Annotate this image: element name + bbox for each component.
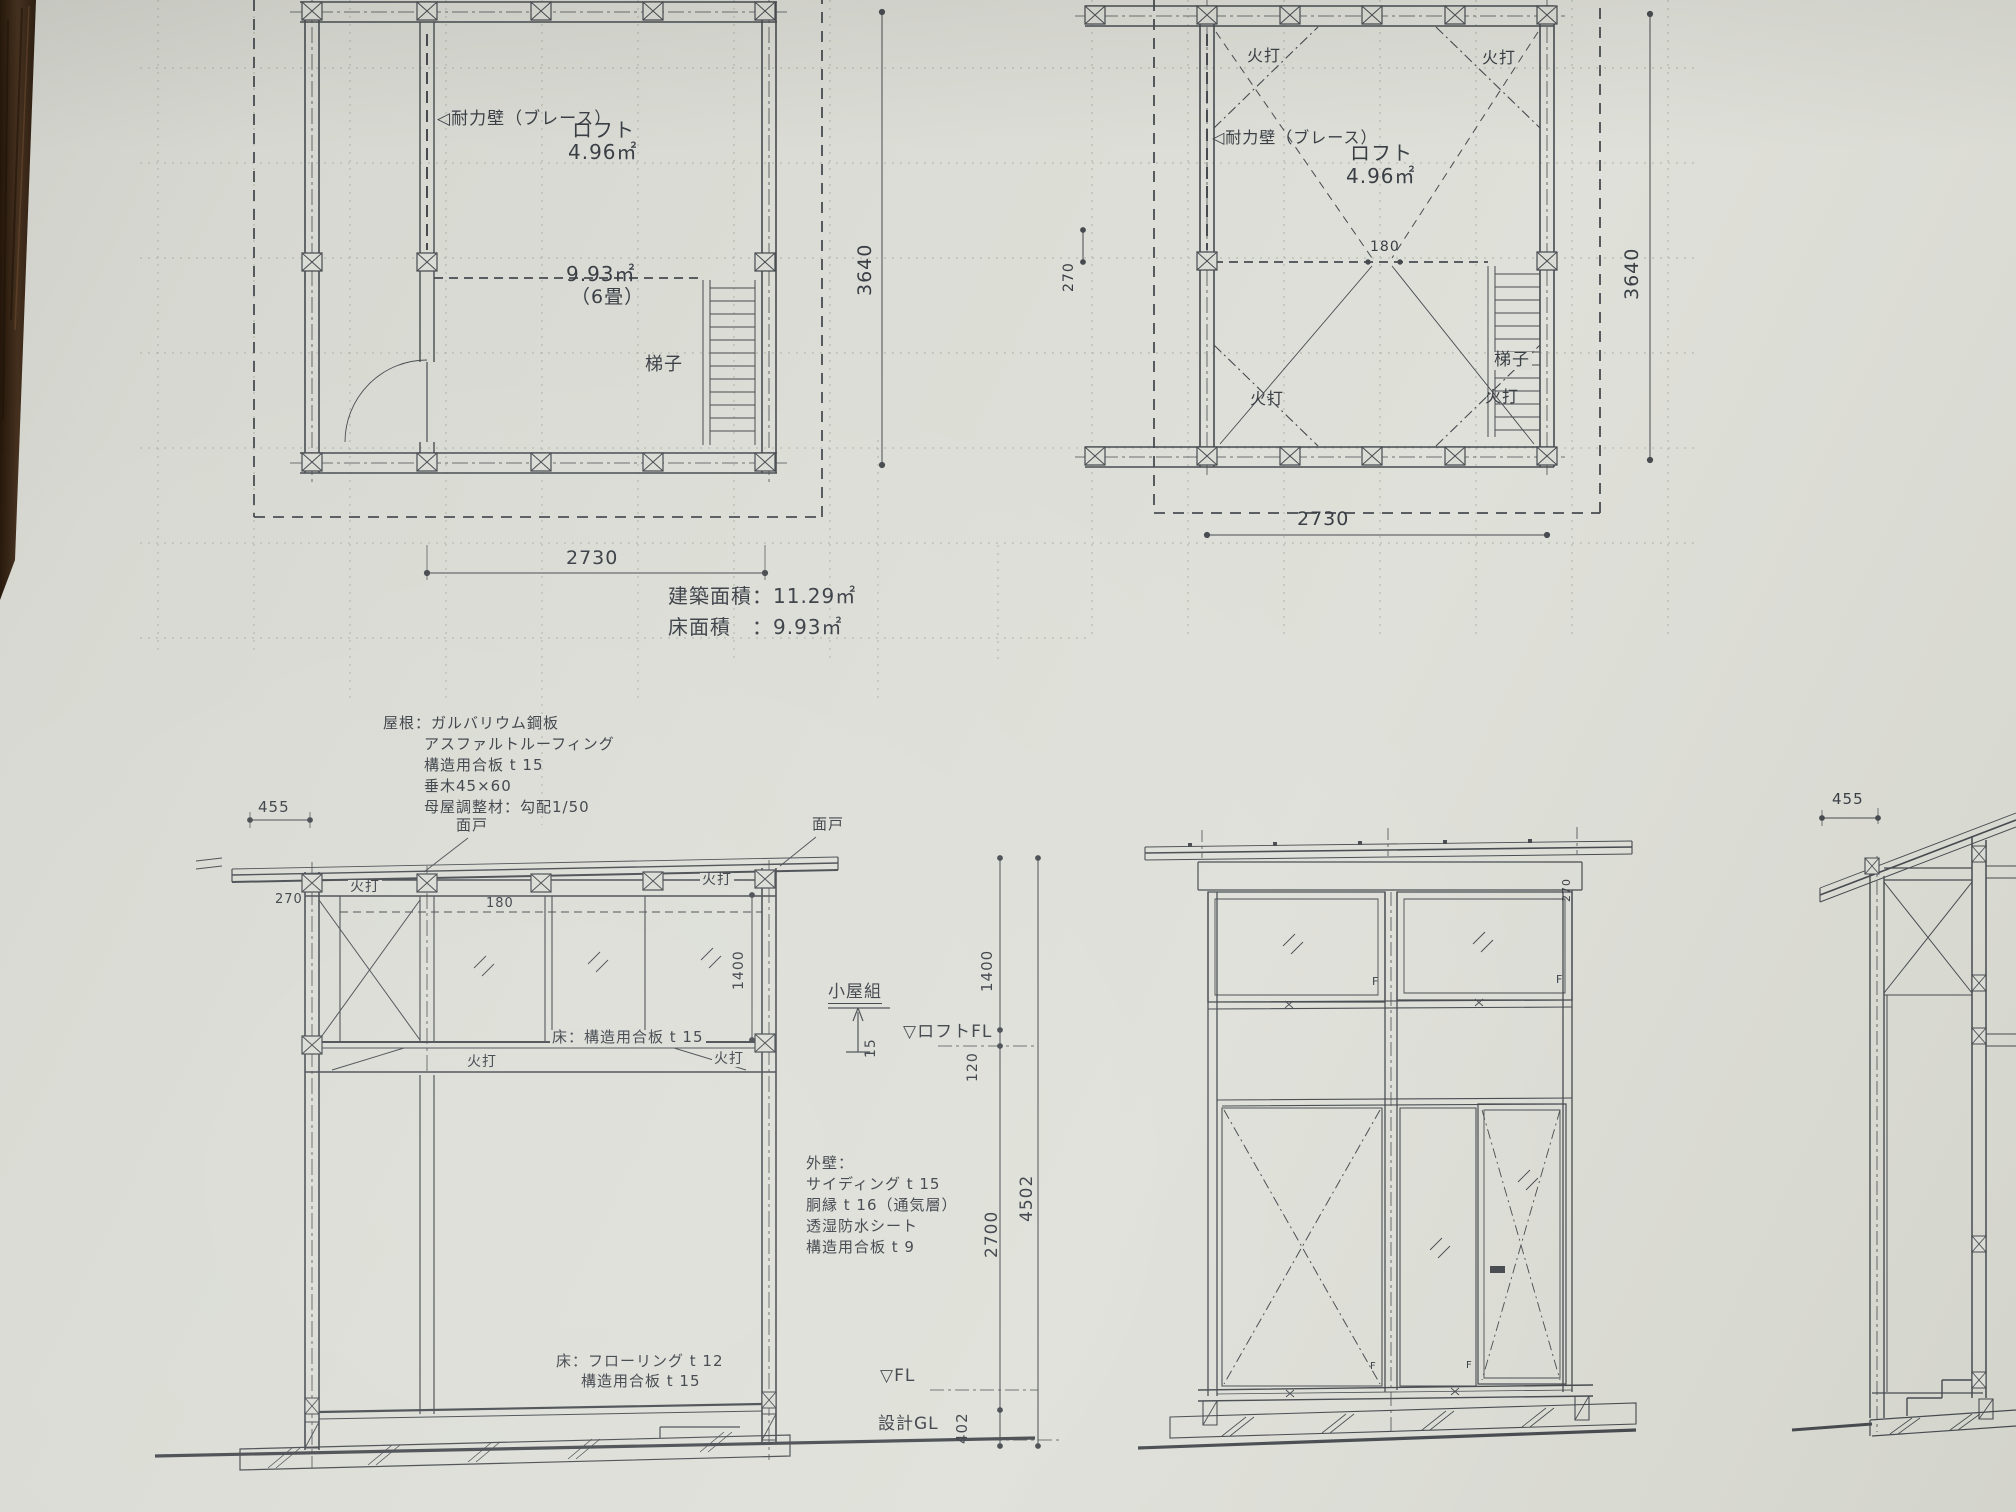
elevation-linework bbox=[1138, 827, 1636, 1448]
plan-right-width-dim: 2730 bbox=[1297, 510, 1349, 530]
elevation-f-top-left: F bbox=[1372, 976, 1379, 988]
roof-spec-line4: 垂木45×60 bbox=[424, 779, 512, 795]
wall-spec-title: 外壁： bbox=[806, 1156, 854, 1172]
plan-left-loft-area: 4.96㎡ bbox=[568, 142, 638, 163]
section-left-dim-402: 402 bbox=[955, 1412, 971, 1444]
plan-right-loft-label: ロフト bbox=[1350, 143, 1413, 164]
roof-spec-line5: 母屋調整材：勾配1/50 bbox=[424, 800, 590, 816]
floor-area-text: 床面積 ：9.93㎡ bbox=[668, 617, 843, 638]
section-left-hiuchi-floor-right: 火打 bbox=[712, 1052, 746, 1067]
blueprint-linework bbox=[0, 0, 2016, 1512]
plan-right-hiuchi-top-left: 火打 bbox=[1247, 48, 1281, 65]
section-left-hiuchi-floor-left: 火打 bbox=[465, 1055, 499, 1070]
plan-left-room-size: （6畳） bbox=[571, 288, 644, 308]
roof-spec-line3: 構造用合板 t 15 bbox=[424, 758, 544, 774]
floor-spec-line2: 構造用合板 t 15 bbox=[581, 1374, 701, 1390]
section-left-dim-4502: 4502 bbox=[1019, 1175, 1037, 1222]
section-left-dim-1400-inner: 1400 bbox=[732, 950, 747, 990]
wall-spec-line4: 構造用合板 t 9 bbox=[806, 1240, 915, 1256]
building-area-text: 建築面積：11.29㎡ bbox=[668, 586, 856, 607]
plan-right-loft-area: 4.96㎡ bbox=[1346, 166, 1416, 187]
floor-spec-line1: 床：フローリング t 12 bbox=[556, 1354, 724, 1370]
section-left-mendo-left: 面戸 bbox=[456, 818, 488, 834]
plan-right-hiuchi-top-right: 火打 bbox=[1482, 50, 1516, 67]
section-left-fl-label: ▽FL bbox=[880, 1368, 915, 1386]
section-right-linework bbox=[1792, 808, 2016, 1436]
section-left-loft-fl-label: ▽ロフトFL bbox=[903, 1024, 992, 1042]
section-left-dim-2700: 2700 bbox=[984, 1211, 1002, 1258]
plan-left-loft-label: ロフト bbox=[572, 120, 635, 141]
section-right-dim-455: 455 bbox=[1832, 792, 1864, 808]
plan-right-dim-270: 270 bbox=[1062, 262, 1077, 292]
table-wood-corner bbox=[0, 0, 36, 600]
plan-right-hiuchi-bottom-right: 火打 bbox=[1485, 389, 1519, 406]
roof-spec-line1: 屋根：ガルバリウム鋼板 bbox=[383, 716, 559, 732]
wall-spec-line1: サイディング t 15 bbox=[806, 1177, 940, 1193]
plan-left-height-dim: 3640 bbox=[856, 244, 876, 296]
section-left-mendo-right: 面戸 bbox=[812, 817, 844, 833]
section-left-hiuchi-roof-left: 火打 bbox=[348, 880, 382, 895]
wall-spec-line3: 透湿防水シート bbox=[806, 1219, 918, 1235]
plan-left-room-area: 9.93㎡ bbox=[566, 264, 636, 285]
elevation-dim-270: 270 bbox=[1561, 878, 1573, 902]
plan-right-dim-180: 180 bbox=[1370, 240, 1400, 255]
plan-left-width-dim: 2730 bbox=[566, 549, 618, 569]
section-left-dim-180: 180 bbox=[484, 897, 516, 911]
section-left-hiuchi-roof-right: 火打 bbox=[700, 873, 734, 888]
wall-spec-line2: 胴縁 t 16（通気層） bbox=[806, 1198, 958, 1214]
module-grid bbox=[140, 0, 1700, 825]
section-left-dim-1400: 1400 bbox=[980, 950, 996, 992]
roof-spec-line2: アスファルトルーフィング bbox=[424, 737, 615, 753]
plan-left-ladder-label: 梯子 bbox=[645, 356, 683, 375]
plan-right-height-dim: 3640 bbox=[1623, 248, 1643, 300]
elevation-f-bottom-left: F bbox=[1370, 1362, 1377, 1373]
section-left-dim-120: 120 bbox=[966, 1052, 981, 1082]
section-left-koyagumi-label: 小屋組 bbox=[828, 984, 882, 1004]
elevation-f-top-right: F bbox=[1556, 974, 1563, 986]
plan-right-hiuchi-bottom-left: 火打 bbox=[1250, 391, 1284, 408]
section-left-loft-floor-label: 床：構造用合板 t 15 bbox=[550, 1030, 706, 1046]
section-left-dim-270: 270 bbox=[275, 893, 303, 907]
section-left-dim-15: 15 bbox=[864, 1038, 879, 1058]
plan-right-ladder-label: 梯子 bbox=[1492, 352, 1532, 370]
elevation-f-bottom-right: F bbox=[1466, 1361, 1473, 1372]
plan-right-linework bbox=[1075, 0, 1653, 538]
section-left-gl-label: 設計GL bbox=[878, 1416, 939, 1434]
blueprint-photo: { "palette": { "paper": "#dbdcd5", "line… bbox=[0, 0, 2016, 1512]
section-left-dim-455: 455 bbox=[258, 800, 290, 816]
plan-left-linework bbox=[254, 0, 885, 580]
